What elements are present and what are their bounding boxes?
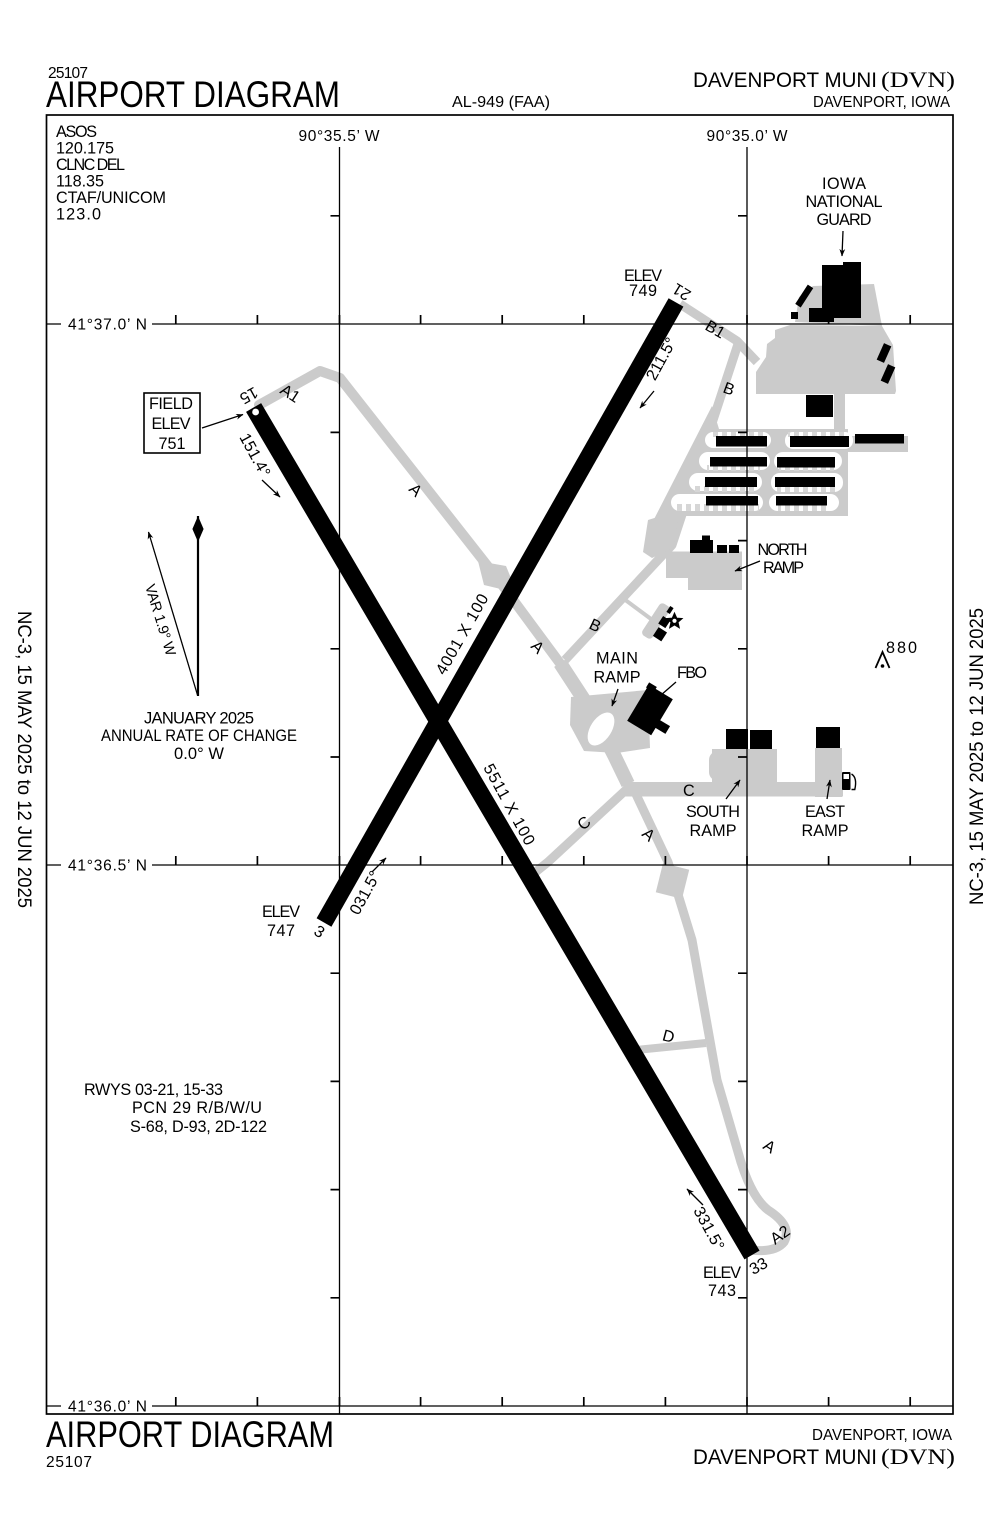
svg-text:AIRPORT DIAGRAM: AIRPORT DIAGRAM [46,74,340,115]
svg-text:ELEV: ELEV [152,415,191,433]
svg-text:123.0: 123.0 [56,206,101,224]
svg-text:DAVENPORT MUNI: DAVENPORT MUNI [693,1445,877,1469]
svg-text:S-68, D-93, 2D-122: S-68, D-93, 2D-122 [130,1118,267,1136]
svg-text:JANUARY 2025: JANUARY 2025 [144,710,254,728]
svg-text:CLNC DEL: CLNC DEL [56,156,125,174]
svg-text:SOUTH: SOUTH [686,803,740,821]
svg-text:GUARD: GUARD [817,211,872,229]
svg-text:120.175: 120.175 [56,140,114,158]
svg-text:ELEV: ELEV [703,1264,741,1282]
svg-text:749: 749 [629,282,657,300]
svg-text:743: 743 [708,1282,736,1300]
svg-text:AL-949 (FAA): AL-949 (FAA) [452,94,550,111]
svg-text:DAVENPORT, IOWA: DAVENPORT, IOWA [813,94,951,111]
svg-text:RAMP: RAMP [594,669,641,687]
svg-text:RWYS 03-21, 15-33: RWYS 03-21, 15-33 [84,1081,223,1099]
svg-text:C: C [683,782,695,800]
svg-text:DAVENPORT MUNI: DAVENPORT MUNI [693,68,877,92]
svg-text:25107: 25107 [46,1454,92,1471]
svg-text:NC-3, 15 MAY 2025 to 12 JUN: NC-3, 15 MAY 2025 to 12 JUN 2025 [13,611,34,908]
svg-text:DAVENPORT, IOWA: DAVENPORT, IOWA [812,1427,953,1444]
svg-text:ASOS: ASOS [56,123,97,141]
svg-text:90°35.5’ W: 90°35.5’ W [299,128,380,145]
svg-text:CTAF/UNICOM: CTAF/UNICOM [56,189,166,207]
svg-text:IOWA: IOWA [822,175,866,193]
svg-text:PCN 29 R/B/W/U: PCN 29 R/B/W/U [132,1099,262,1117]
svg-text:90°35.0’ W: 90°35.0’ W [707,128,788,145]
svg-text:ANNUAL RATE OF CHANGE: ANNUAL RATE OF CHANGE [101,727,297,745]
svg-text:118.35: 118.35 [56,173,104,191]
svg-text:747: 747 [267,922,295,940]
svg-text:(DVN): (DVN) [881,1444,955,1469]
svg-text:RAMP: RAMP [690,822,737,840]
svg-text:FBO: FBO [677,664,707,682]
svg-text:RAMP: RAMP [802,822,849,840]
svg-text:NORTH: NORTH [758,541,808,559]
svg-text:NC-3, 15 MAY 2025 to 12 JUN: NC-3, 15 MAY 2025 to 12 JUN 2025 [967,608,988,905]
svg-text:RAMP: RAMP [763,559,804,577]
svg-text:41°36.5’ N: 41°36.5’ N [68,858,147,875]
svg-text:0.0° W: 0.0° W [174,745,224,763]
svg-text:EAST: EAST [805,803,845,821]
svg-text:MAIN: MAIN [596,650,638,668]
svg-text:NATIONAL: NATIONAL [806,193,883,211]
svg-text:ELEV: ELEV [262,903,300,921]
svg-text:AIRPORT DIAGRAM: AIRPORT DIAGRAM [46,1414,334,1455]
svg-text:FIELD: FIELD [149,395,193,413]
svg-text:880: 880 [886,639,917,657]
svg-text:(DVN): (DVN) [881,67,955,92]
svg-text:751: 751 [159,435,186,453]
svg-text:41°36.0’ N: 41°36.0’ N [68,1399,147,1416]
svg-text:41°37.0’ N: 41°37.0’ N [68,317,147,334]
